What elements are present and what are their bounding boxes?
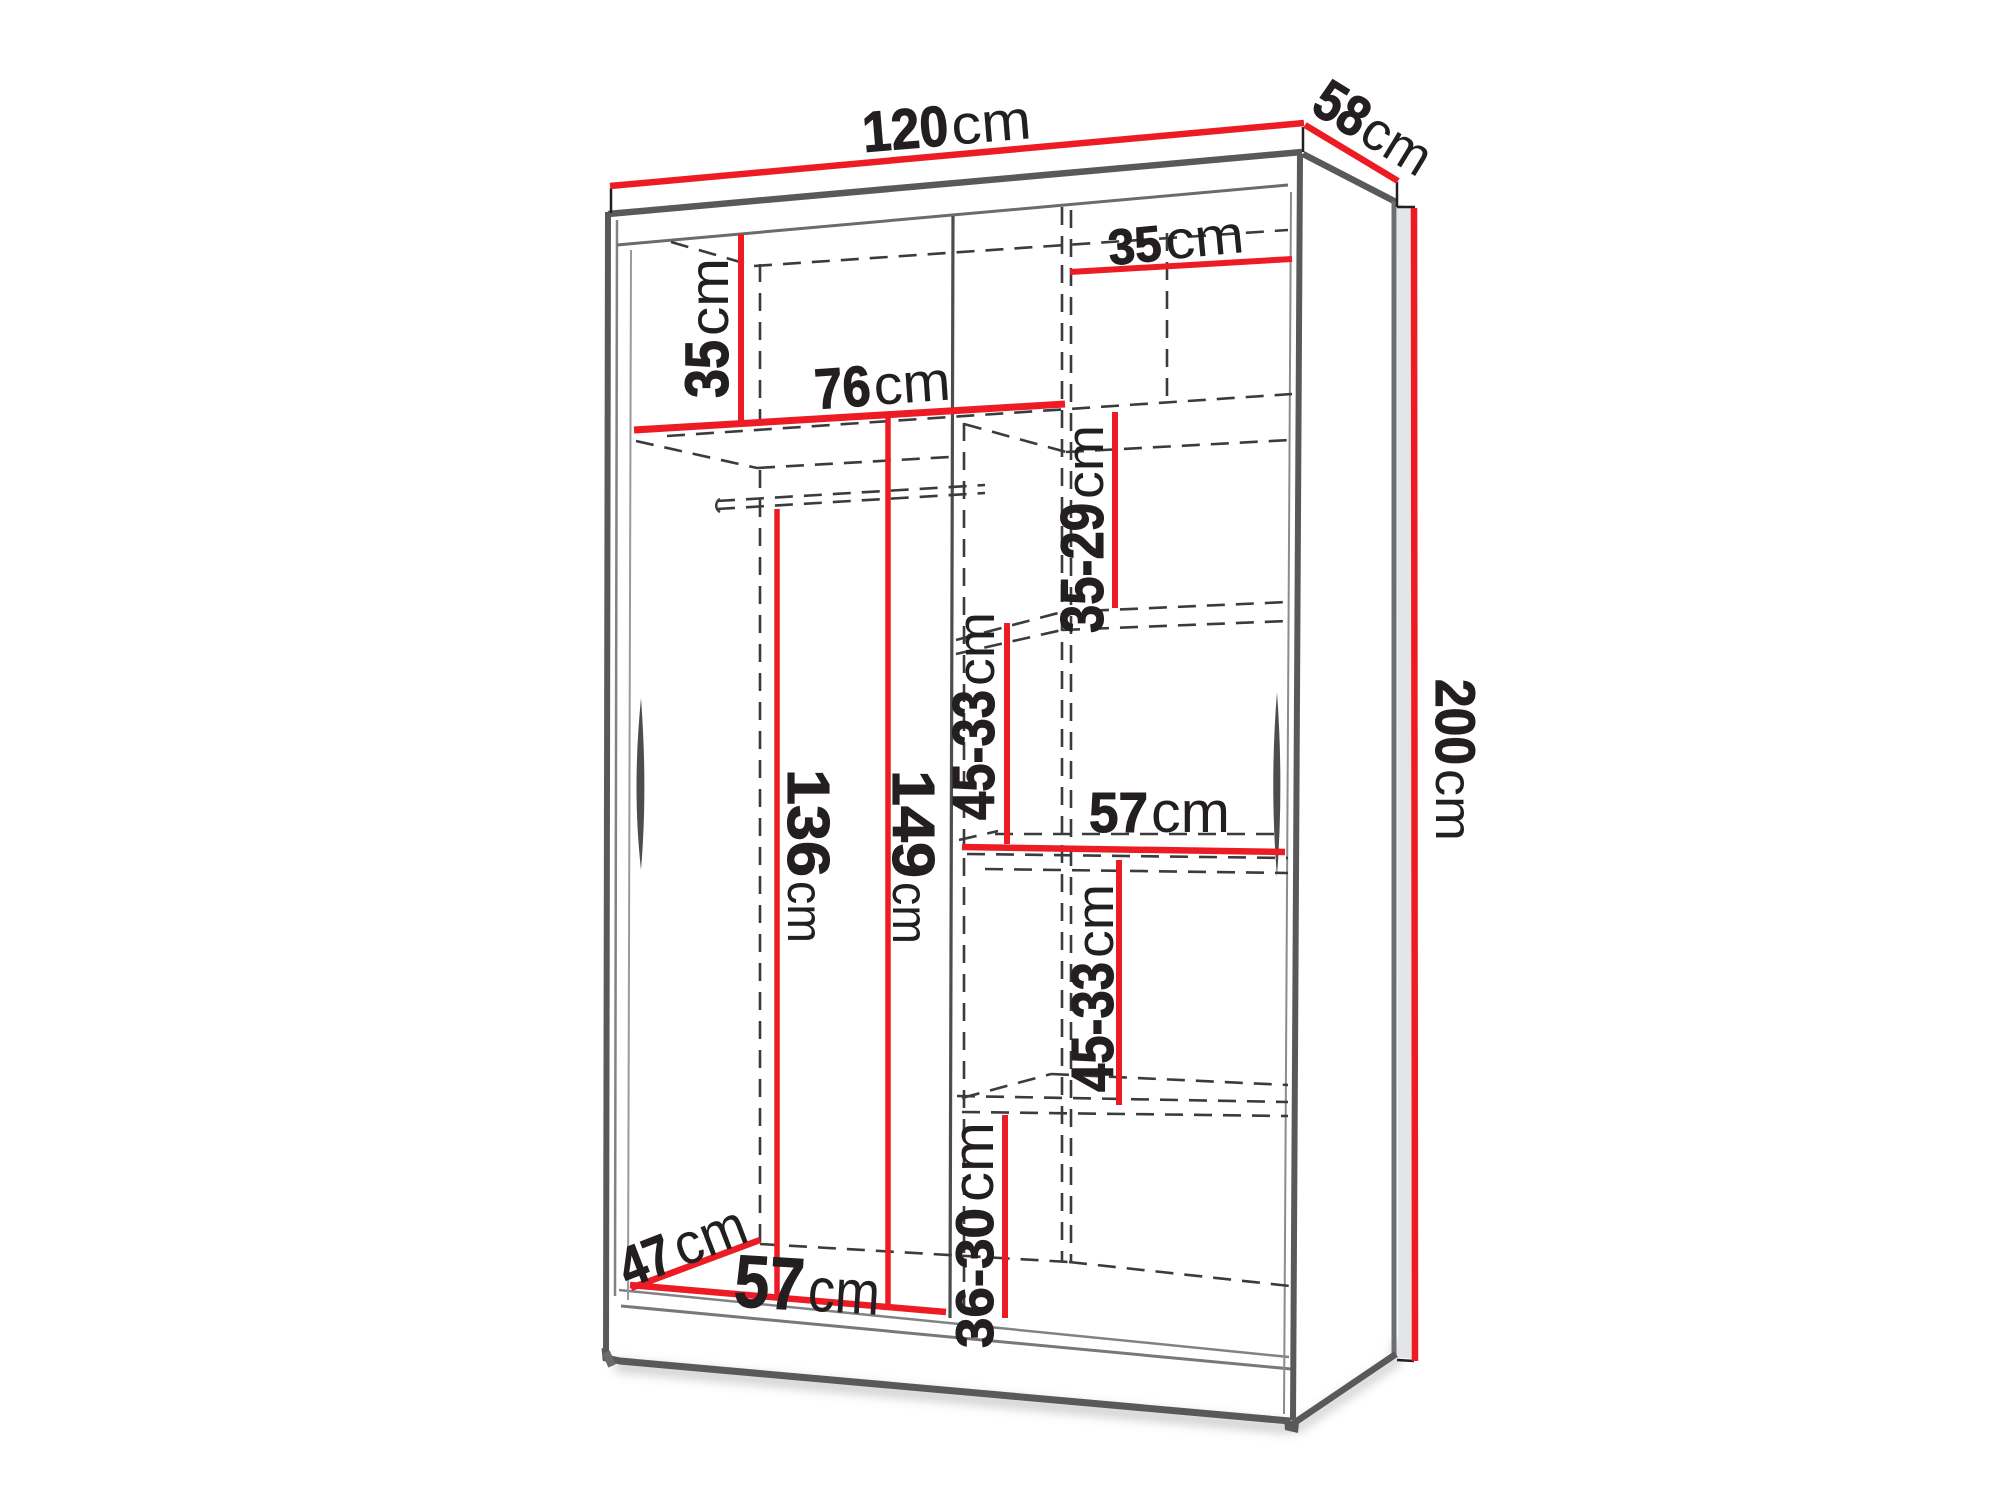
svg-text:cm: cm	[1424, 769, 1482, 841]
svg-text:200: 200	[1424, 679, 1487, 765]
svg-text:cm: cm	[1066, 884, 1125, 958]
svg-text:cm: cm	[941, 1122, 1006, 1202]
svg-text:149: 149	[880, 770, 946, 878]
svg-text:cm: cm	[882, 882, 938, 944]
svg-text:cm: cm	[777, 881, 833, 943]
svg-text:45-33: 45-33	[941, 690, 1007, 820]
svg-text:cm: cm	[871, 349, 952, 417]
svg-text:35: 35	[1106, 215, 1164, 276]
svg-text:cm: cm	[949, 87, 1034, 156]
svg-text:cm: cm	[677, 258, 740, 336]
svg-text:57: 57	[1089, 781, 1148, 845]
svg-text:35-29: 35-29	[1049, 503, 1116, 633]
svg-text:cm: cm	[1056, 425, 1115, 499]
svg-text:45-33: 45-33	[1060, 962, 1126, 1092]
svg-text:35: 35	[673, 340, 741, 398]
svg-text:cm: cm	[1162, 204, 1246, 271]
svg-text:cm: cm	[806, 1256, 882, 1329]
svg-text:76: 76	[812, 354, 872, 422]
svg-text:136: 136	[775, 769, 841, 877]
svg-text:cm: cm	[1151, 780, 1230, 845]
svg-text:120: 120	[860, 94, 951, 165]
svg-text:57: 57	[732, 1239, 807, 1326]
svg-text:36-30: 36-30	[946, 1208, 1005, 1348]
svg-text:cm: cm	[947, 612, 1006, 686]
